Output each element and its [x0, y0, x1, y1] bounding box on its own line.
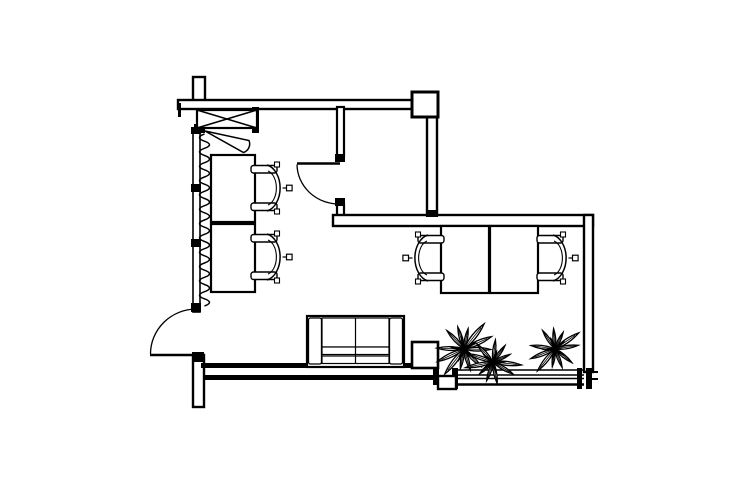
entry-door-leaf [205, 131, 250, 153]
office-chair-left-2 [251, 231, 292, 283]
room-door-jamb-top [335, 154, 345, 162]
radiator-squiggle [200, 134, 210, 306]
window-mullion-lower [191, 239, 201, 247]
floor-plan [0, 0, 740, 493]
column [412, 92, 438, 117]
desk-right-2 [490, 226, 538, 293]
wall-top [178, 100, 412, 109]
room-door-jamb-bottom [335, 198, 345, 206]
wall-right [584, 215, 593, 372]
window-block-bottom [191, 303, 201, 312]
desk-left-1 [211, 155, 255, 222]
wall-top-end-tick [178, 103, 181, 117]
room-door [297, 164, 340, 205]
step-foot [438, 376, 456, 389]
window-tick-lower [592, 378, 598, 380]
sofa [307, 316, 404, 367]
desk-right-1 [441, 226, 489, 293]
wall-room-right [427, 116, 437, 217]
plant-3 [531, 329, 579, 371]
wall-bottom-stub [193, 355, 204, 407]
wall-mid-horizontal [333, 215, 593, 226]
wall-left-window [193, 130, 200, 312]
office-chair-right-2 [537, 232, 578, 284]
floor-plan-canvas [0, 0, 740, 493]
office-chair-right-1 [403, 232, 444, 284]
desk-left-2 [211, 224, 255, 292]
window-sill [455, 370, 584, 385]
room-wall-cap [426, 210, 438, 217]
door-hinge-block [192, 352, 204, 362]
window-post-right-outer [586, 368, 592, 389]
shaft-box [197, 110, 257, 128]
bottom-wall-outer [204, 375, 438, 380]
exterior-door [150, 309, 196, 355]
office-chair-left-1 [251, 162, 292, 214]
wall-room-left-upper [337, 107, 344, 156]
side-table [412, 342, 438, 368]
window-tick-upper [592, 371, 598, 373]
window-mullion-upper [191, 184, 201, 192]
